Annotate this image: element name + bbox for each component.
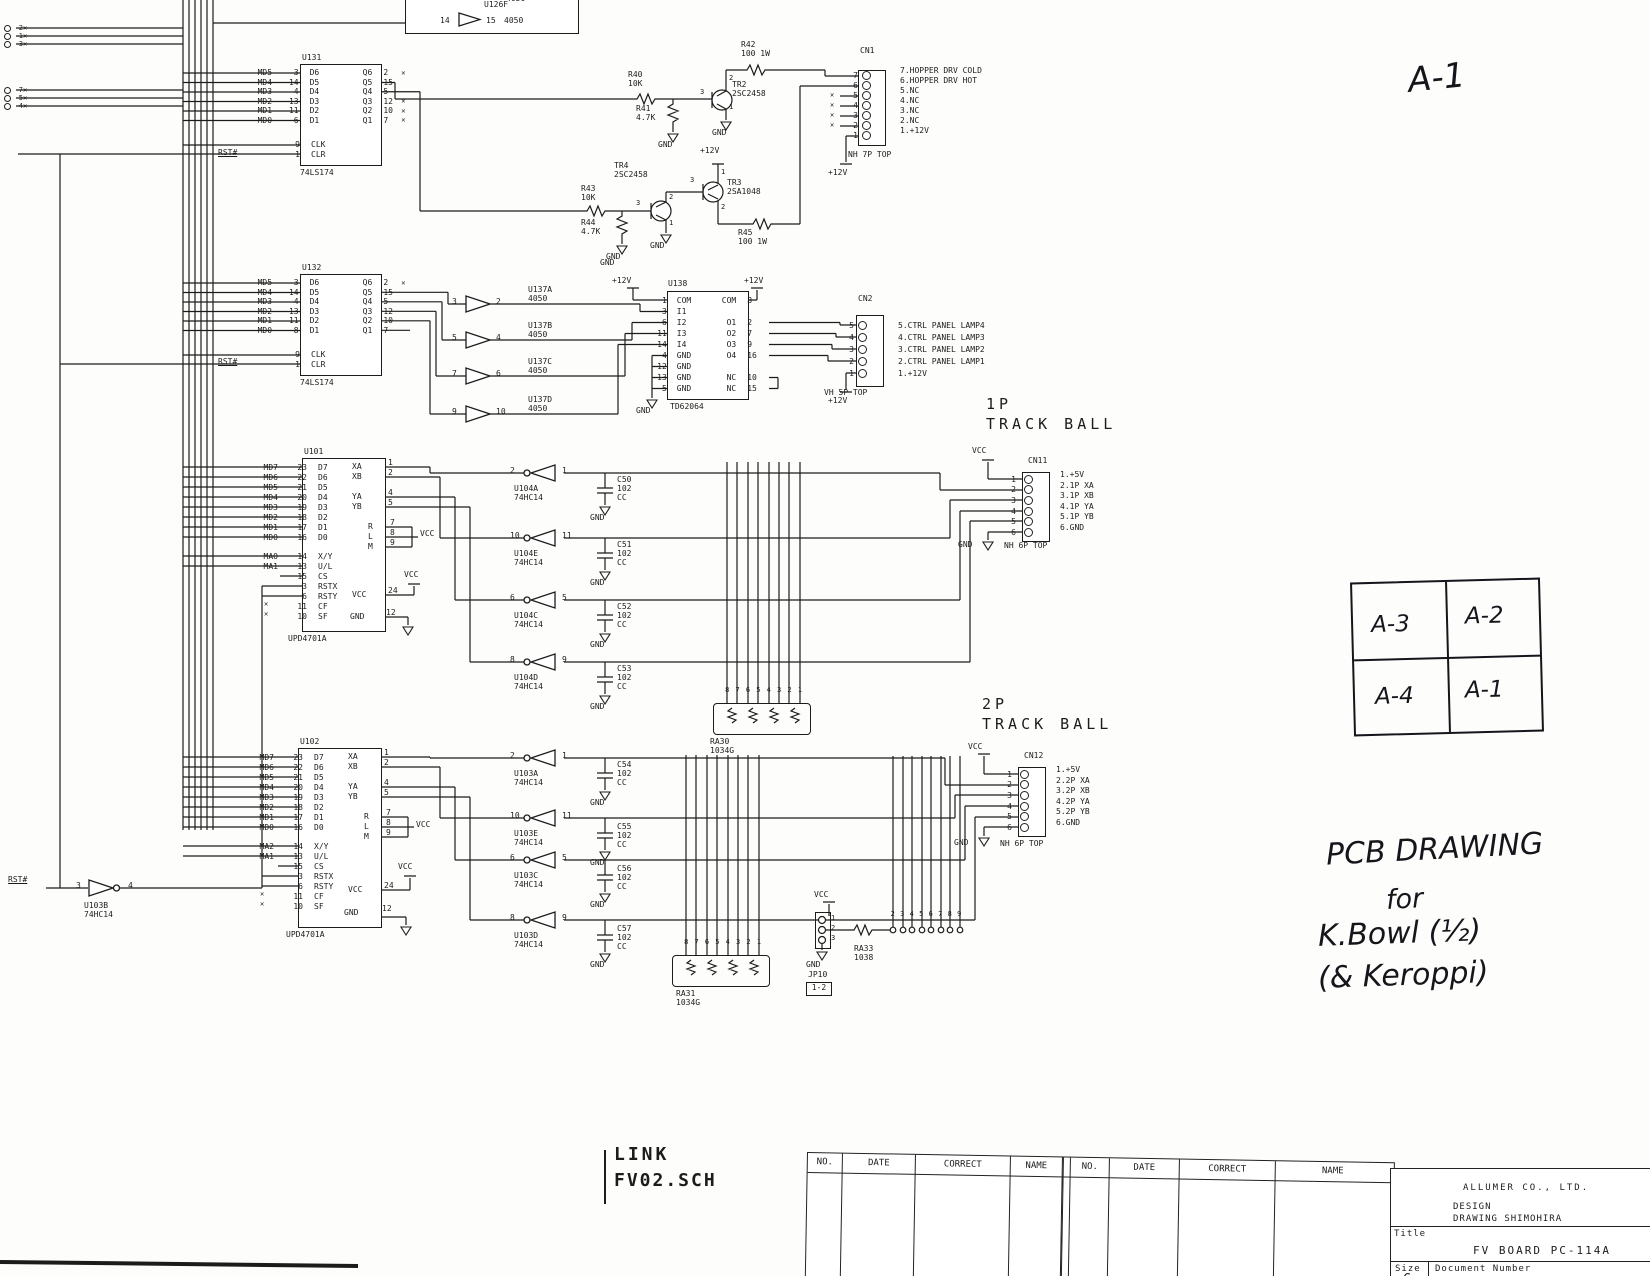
pin-number: 4	[645, 351, 673, 360]
pin-circle	[4, 33, 11, 40]
signal-label: MD4	[240, 493, 283, 502]
pin-circle	[1020, 812, 1029, 821]
gnd-label: GND	[590, 578, 604, 587]
ra31-label: RA311034G	[676, 989, 700, 1007]
vcc-bars	[404, 164, 994, 902]
pin-number: 2	[729, 74, 733, 82]
no-connect-mark: ✕	[260, 890, 264, 898]
pin-number: 3	[842, 111, 858, 120]
pin-number: 7	[741, 329, 769, 338]
pin-number: 3	[996, 791, 1012, 800]
pin-circle	[4, 25, 11, 32]
ic-part: 74LS174	[300, 378, 334, 387]
pin-circle	[4, 87, 11, 94]
signal-label: MD0	[236, 823, 279, 832]
pin-circle	[1024, 496, 1033, 505]
pin-number: 11	[645, 329, 673, 338]
pin-circle	[862, 111, 871, 120]
pin-number: 2	[996, 780, 1012, 789]
pin-number: 7	[11, 86, 23, 94]
pin-number: 4	[1000, 507, 1016, 516]
pin-circle	[1024, 475, 1033, 484]
pin-name: Q5	[342, 288, 377, 297]
gate-in-pin: 11	[562, 811, 572, 820]
signal-label: MD4	[238, 288, 277, 297]
pin-name: M	[364, 832, 369, 841]
pin-number: 2	[669, 193, 673, 201]
cap-label-c56: C56102CC	[617, 864, 631, 891]
section-title-2p: 2P	[982, 696, 1008, 712]
pin-number: 10	[377, 106, 401, 115]
pin-name: Q4	[342, 87, 377, 96]
link-note-line1: LINK	[614, 1150, 669, 1159]
pin-name: CS	[313, 572, 354, 581]
pin-number: 5	[388, 498, 393, 507]
connector-pin-descriptions: 5.CTRL PANEL LAMP44.CTRL PANEL LAMP33.CT…	[898, 320, 985, 380]
pin-number: 3	[831, 934, 835, 942]
gate-out-pin: 6	[510, 853, 515, 862]
signal-label: MD4	[238, 78, 277, 87]
cap-label-c51: C51102CC	[617, 540, 631, 567]
pin-number: 6	[1000, 528, 1016, 537]
pin-name: Q6	[342, 68, 377, 77]
gnd-label: GND	[636, 406, 650, 415]
gnd-label: GND	[954, 838, 968, 847]
drawing-by: DRAWING SHIMOHIRA	[1453, 1214, 1562, 1224]
pin-number: 5	[842, 91, 858, 100]
no-connect-mark: ✕	[264, 600, 268, 608]
gnd-label: GND	[590, 702, 604, 711]
pin-name: GND	[673, 384, 707, 393]
pin-number: 6	[842, 81, 858, 90]
pin-name: D4	[305, 87, 342, 96]
pin-number: 5	[11, 94, 23, 102]
gnd-label: GND	[650, 241, 664, 250]
pin-number: 11	[279, 892, 309, 901]
pin-number: 4	[277, 297, 305, 306]
signal-label: MD0	[238, 116, 277, 125]
gate-in-pin: 11	[562, 531, 572, 540]
pin-number: 6	[645, 318, 673, 327]
pin-number: 2	[842, 121, 858, 130]
gnd-label: GND	[806, 960, 820, 969]
jumper-pin-numbers: 123	[831, 913, 835, 943]
signal-label: MD3	[236, 793, 279, 802]
power-label: +12V	[700, 146, 719, 155]
signal-label-rst: RST#	[218, 148, 237, 157]
pin-number: 15	[283, 572, 313, 581]
signal-label: MD7	[240, 463, 283, 472]
pin-name: RSTX	[313, 582, 354, 591]
power-label: VCC	[420, 529, 434, 538]
pin-number: 5	[645, 384, 673, 393]
gate-out-pin: 2	[510, 466, 515, 475]
ra33-label: RA331038	[854, 944, 873, 962]
pin-number: 1	[669, 219, 673, 227]
cap-label-c57: C57102CC	[617, 924, 631, 951]
gate-label: U104A74HC14	[514, 484, 543, 502]
gate-u103c: 6 5 U103C74HC14	[510, 851, 630, 891]
gate-out-pin: 10	[496, 407, 506, 416]
pin-number: 8	[386, 818, 391, 827]
connector-type: NH 6P TOP	[1000, 839, 1043, 848]
signal-label: MD1	[238, 316, 277, 325]
pin-number: 14	[283, 552, 313, 561]
sheet-grid-handwritten: A-3 A-2 A-4 A-1	[1350, 578, 1544, 737]
grid-cell-tl: A-3	[1371, 611, 1410, 638]
signal-label: MD0	[238, 326, 277, 335]
pin-circle	[1024, 507, 1033, 516]
pin-number: 15	[741, 384, 769, 393]
pin-name: CLK	[306, 350, 347, 359]
pin-name: GND	[673, 373, 707, 382]
design-label: DESIGN	[1453, 1202, 1492, 1212]
pin-number: 1	[384, 748, 389, 757]
ra33-pin-numbers: 23456789	[888, 910, 964, 918]
gnd-label: GND	[590, 513, 604, 522]
pin-number: 2	[384, 758, 389, 767]
pin-number: 6	[277, 116, 305, 125]
signal-label: MD2	[238, 97, 277, 106]
pin-number: 9	[276, 140, 306, 149]
pin-name: D2	[309, 803, 350, 812]
signal-label: MD6	[240, 473, 283, 482]
ic-part: 74LS174	[300, 168, 334, 177]
pin-number: 3	[690, 176, 694, 184]
signal-label: MD2	[238, 307, 277, 316]
no-connect-mark: ✕	[23, 94, 27, 102]
ic-ref: U102	[300, 737, 319, 746]
jumper-jp10-body	[815, 912, 831, 949]
gate-label: U137B4050	[528, 321, 552, 339]
pin-number: 4	[11, 102, 23, 110]
pin-name: Q1	[342, 116, 377, 125]
no-connect-mark: ✕	[23, 40, 27, 48]
pin-name: D6	[305, 68, 342, 77]
pin-name: XA	[348, 752, 358, 761]
pin-name: VCC	[348, 885, 362, 894]
grid-cell-br: A-1	[1465, 677, 1504, 704]
pin-number: 14	[277, 288, 305, 297]
gate-u104d: 8 9 U104D74HC14	[510, 653, 630, 693]
pin-number: 10	[741, 373, 769, 382]
no-connect-mark: ✕	[23, 24, 27, 32]
signal-label: MD4	[236, 783, 279, 792]
pin-name: D4	[313, 493, 354, 502]
pin-number: 13	[277, 97, 305, 106]
schematic-sheet: 2✕1✕3✕ 7✕5✕4✕ 4050 U126F 14 15 4050 U131…	[0, 0, 1650, 1276]
pin-number: 18	[283, 513, 313, 522]
ic-ref: U138	[668, 279, 687, 288]
ra31-pin-numbers: 87654321	[681, 938, 764, 946]
gate-u104c: 6 5 U104C74HC14	[510, 591, 630, 631]
pin-number: 4	[842, 101, 858, 110]
gnd-label: GND	[712, 128, 726, 137]
trackball2-wires	[380, 755, 1026, 955]
signal-label: MA0	[240, 552, 283, 561]
trackball1-wires	[384, 462, 1030, 703]
no-connect-mark: ✕	[23, 102, 27, 110]
power-label: +12V	[828, 396, 847, 405]
gate-out-pin: 15	[486, 16, 496, 25]
title-block-rule-1	[1391, 1226, 1650, 1227]
gate-label: U104D74HC14	[514, 673, 543, 691]
gate-out-pin: 2	[496, 297, 501, 306]
pin-name: RSTY	[313, 592, 354, 601]
gate-label: U103D74HC14	[514, 931, 543, 949]
pin-name: D2	[305, 316, 342, 325]
no-connect-mark: ✕	[260, 900, 264, 908]
pin-number: 17	[283, 523, 313, 532]
signal-label: MD2	[240, 513, 283, 522]
rev-col-correct2: CORRECT	[1178, 1160, 1276, 1276]
no-connect-mark: ✕	[401, 97, 412, 105]
pin-number: 12	[377, 307, 401, 316]
gate-out-pin: 8	[510, 655, 515, 664]
signal-label: MD5	[238, 278, 277, 287]
rev-col-name2: NAME	[1274, 1161, 1390, 1276]
gnd-label: GND	[590, 640, 604, 649]
pin-circle	[4, 41, 11, 48]
gate-part: 4050	[506, 0, 525, 3]
ic-part: UPD4701A	[286, 930, 325, 939]
sheet-mark-handwritten: A-1	[1406, 55, 1467, 101]
pin-number: 14	[277, 78, 305, 87]
pin-name: YA	[348, 782, 358, 791]
pin-number: 20	[279, 783, 309, 792]
pin-number: 3	[838, 345, 854, 354]
pin-circle	[858, 345, 867, 354]
ra30-label: RA301034G	[710, 737, 734, 755]
gate-label: U103A74HC14	[514, 769, 543, 787]
pin-number: 1	[1000, 475, 1016, 484]
transistor-label-tr3: TR32SA1048	[727, 178, 761, 196]
pin-number: 18	[279, 803, 309, 812]
pin-number: 7	[390, 518, 395, 527]
signal-label: MA1	[236, 852, 279, 861]
signal-label-rst: RST#	[218, 357, 237, 366]
pin-name: NC	[707, 373, 742, 382]
pin-name: Q2	[342, 106, 377, 115]
gnd-label: GND	[590, 798, 604, 807]
pin-name: D3	[313, 503, 354, 512]
pin-name: D4	[305, 297, 342, 306]
connector-type: NH 6P TOP	[1004, 541, 1047, 550]
gnd-label: GND	[600, 258, 614, 267]
pin-number: 21	[283, 483, 313, 492]
title-label: Title	[1394, 1229, 1426, 1239]
pin-number: 17	[279, 813, 309, 822]
signal-label: MD2	[236, 803, 279, 812]
pin-circle	[858, 321, 867, 330]
pin-name: SF	[313, 612, 354, 621]
pin-circle	[4, 95, 11, 102]
pin-name: YB	[352, 502, 362, 511]
pin-name: D4	[309, 783, 350, 792]
pin-name: D3	[305, 97, 342, 106]
pin-name: RSTX	[309, 872, 350, 881]
signal-label: MD3	[240, 503, 283, 512]
pin-number: 20	[283, 493, 313, 502]
gate-out-pin: 4	[496, 333, 501, 342]
transistor-label-tr2: TR22SC2458	[732, 80, 766, 98]
gate-in-pin: 14	[440, 16, 450, 25]
pin-name: Q3	[342, 97, 377, 106]
gate-u137c: 7 6 U137C4050	[452, 367, 572, 407]
pin-circle	[862, 101, 871, 110]
edge-connector-stub-1: 2✕1✕3✕	[4, 24, 27, 48]
gate-in-pin: 1	[562, 751, 567, 760]
pin-number: 24	[388, 586, 398, 595]
pin-number: 4	[388, 488, 393, 497]
pin-number: 4	[277, 87, 305, 96]
pin-number: 13	[645, 373, 673, 382]
signal-label: MD5	[238, 68, 277, 77]
pin-number: 3	[700, 88, 704, 96]
pin-circle	[862, 81, 871, 90]
gate-u103d: 8 9 U103D74HC14	[510, 911, 630, 951]
pin-number: 14	[645, 340, 673, 349]
edge-connector-stub-2: 7✕5✕4✕	[4, 86, 27, 110]
section-title-1p-trackball: TRACK BALL	[986, 416, 1116, 432]
pin-number: 1	[842, 131, 858, 140]
gate-out-pin: 10	[510, 531, 520, 540]
pin-number: 12	[382, 904, 392, 913]
pin-number: 3	[636, 199, 640, 207]
pin-number: 2	[11, 24, 23, 32]
no-connect-mark: ✕	[830, 101, 842, 109]
pin-name: D5	[305, 78, 342, 87]
pin-number: 4	[996, 802, 1012, 811]
cap-label-c52: C52102CC	[617, 602, 631, 629]
gnd-label: GND	[590, 900, 604, 909]
pin-name: Q5	[342, 78, 377, 87]
pin-number: 1	[838, 369, 854, 378]
company-name: ALLUMER CO., LTD.	[1463, 1183, 1589, 1193]
pin-name: YB	[348, 792, 358, 801]
gnd-label: GND	[658, 140, 672, 149]
pin-number: 23	[279, 753, 309, 762]
pin-number: 7	[842, 71, 858, 80]
gate-u103a: 2 1 U103A74HC14	[510, 749, 630, 789]
pin-name: D3	[305, 307, 342, 316]
pin-number: 1	[11, 32, 23, 40]
cap-label-c53: C53102CC	[617, 664, 631, 691]
pin-name: CLR	[306, 360, 347, 369]
gate-in-pin: 9	[562, 655, 567, 664]
resistor-array-ra31	[672, 955, 770, 987]
doc-number-label: Document Number	[1435, 1264, 1531, 1274]
pin-number: 15	[377, 288, 401, 297]
power-label: VCC	[416, 820, 430, 829]
connector-pin-descriptions: 1.+5V2.1P XA3.1P XB4.1P YA5.1P YB6.GND	[1060, 470, 1094, 534]
pin-name: O4	[707, 351, 742, 360]
pin-name: O2	[707, 329, 742, 338]
pin-name: D5	[309, 773, 350, 782]
signal-label: MD3	[238, 87, 277, 96]
note-line-3: K.Bowl (½)	[1317, 913, 1481, 954]
pin-name: D2	[313, 513, 354, 522]
pin-name: D6	[313, 473, 354, 482]
pin-name: U/L	[313, 562, 354, 571]
hopper-wires	[380, 70, 860, 244]
pin-number: 5	[377, 87, 401, 96]
signal-label: MD6	[236, 763, 279, 772]
pin-number: 13	[279, 852, 309, 861]
no-connect-mark: ✕	[401, 69, 412, 77]
title-block-rule-2	[1391, 1261, 1650, 1262]
link-note-line2: FV02.SCH	[614, 1176, 717, 1185]
gate-in-pin: 1	[562, 466, 567, 475]
gate-in-pin: 9	[562, 913, 567, 922]
pin-number: 10	[279, 902, 309, 911]
gate-out-pin: 6	[510, 593, 515, 602]
transistor-label-tr4: TR42SC2458	[614, 161, 648, 179]
pin-name: M	[368, 542, 373, 551]
ic-ref: U101	[304, 447, 323, 456]
gate-label: U137A4050	[528, 285, 552, 303]
gate-out-pin: 8	[510, 913, 515, 922]
revision-table: NO. DATE CORRECT NAME NO. DATE CORRECT N…	[805, 1152, 1395, 1276]
gate-label: U104C74HC14	[514, 611, 543, 629]
pin-number: 3	[279, 872, 309, 881]
pin-name: XB	[348, 762, 358, 771]
pin-number: 3	[277, 68, 305, 77]
pin-number: 2	[831, 924, 835, 932]
gnd-label: GND	[958, 540, 972, 549]
pin-number: 3	[11, 40, 23, 48]
pin-name: CLK	[306, 140, 347, 149]
pin-number: 1	[388, 458, 393, 467]
pin-name: Q4	[342, 297, 377, 306]
no-connect-mark: ✕	[401, 279, 412, 287]
pin-name: COM	[707, 296, 742, 305]
gate-label: U137D4050	[528, 395, 552, 413]
resistor-label-r45: R45100 1W	[738, 228, 767, 246]
pin-name: NC	[707, 384, 742, 393]
size-box-divider	[1428, 1261, 1429, 1276]
gate-u137a: 3 2 U137A4050	[452, 295, 572, 335]
signal-label: MD5	[240, 483, 283, 492]
pin-name: D2	[305, 106, 342, 115]
pin-number: 1	[996, 770, 1012, 779]
gate-part: 4050	[504, 16, 523, 25]
pin-name: L	[368, 532, 373, 541]
pin-name: GND	[350, 612, 364, 621]
gnd-label: GND	[590, 960, 604, 969]
gate-in-pin: 5	[562, 853, 567, 862]
signal-label: MD1	[236, 813, 279, 822]
gate-u104e: 10 11 U104E74HC14	[510, 529, 630, 569]
power-label: VCC	[404, 570, 418, 579]
gate-label: U103B74HC14	[84, 901, 113, 919]
jumper-ref: JP10	[808, 970, 827, 979]
pin-number: 6	[996, 823, 1012, 832]
pin-number: 8	[390, 528, 395, 537]
gate-u104a: 2 1 U104A74HC14	[510, 464, 630, 504]
pin-number: 7	[377, 116, 401, 125]
pin-number: 22	[279, 763, 309, 772]
pin-circle	[1024, 517, 1033, 526]
note-line-2: for	[1385, 883, 1424, 916]
connector-type: NH 7P TOP	[848, 150, 891, 159]
pin-number: 22	[283, 473, 313, 482]
pin-name: O3	[707, 340, 742, 349]
pin-number: 2	[377, 68, 401, 77]
pin-number: 4	[384, 778, 389, 787]
signal-label: MD1	[240, 523, 283, 532]
pin-number: 16	[741, 351, 769, 360]
